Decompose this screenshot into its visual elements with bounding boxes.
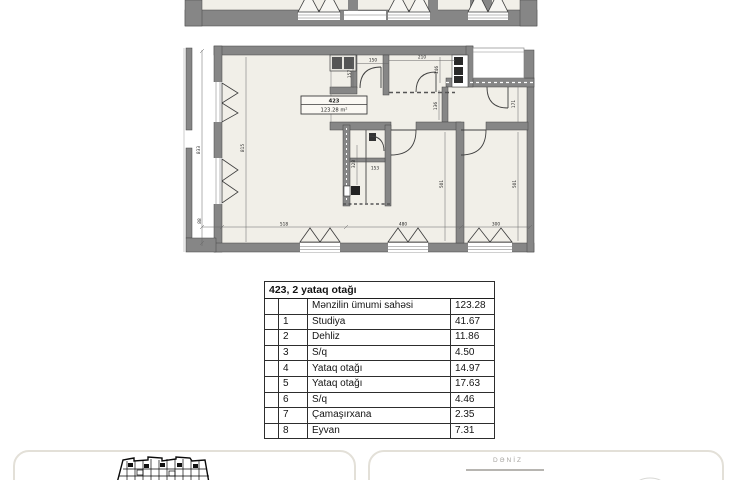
dim-bath-h: 153: [371, 166, 379, 172]
dim-bath-v: 328: [351, 160, 357, 168]
sea-direction-label: DƏNİZ: [465, 457, 551, 464]
building-key-plan-thumbnail: [114, 454, 214, 480]
area-table: 423, 2 yataq otağı Mənzilin ümumi sahəsi…: [264, 281, 495, 439]
dim-bottom-1: 518: [280, 222, 288, 228]
dim-top-v1: 157: [347, 70, 353, 78]
table-row: 8 Eyvan 7.31: [265, 423, 495, 439]
floor-plan-drawing: 833 815 150 210 157 146 136 171 328 153 …: [0, 0, 730, 262]
dim-right-room-v: 171: [511, 100, 517, 108]
table-row: 4 Yataq otağı 14.97: [265, 361, 495, 377]
table-row: 7 Çamaşırxana 2.35: [265, 408, 495, 424]
table-row: Mənzilin ümumi sahəsi 123.28: [265, 299, 495, 315]
unit-label-box: 423 123.28 m²: [301, 96, 367, 114]
main-floor-plan: 833 815 150 210 157 146 136 171 328 153 …: [184, 46, 534, 252]
dim-top-v2: 146: [434, 66, 440, 74]
table-row: 3 S/q 4.50: [265, 345, 495, 361]
dim-bedroom1-v: 501: [439, 180, 445, 188]
table-row: 5 Yataq otağı 17.63: [265, 376, 495, 392]
compass-icon: [622, 473, 678, 480]
dim-bottom-2: 480: [399, 222, 407, 228]
utility-shaft: [452, 55, 468, 87]
key-plan-card: [13, 450, 356, 480]
floor-plan-page: 833 815 150 210 157 146 136 171 328 153 …: [0, 0, 730, 480]
orientation-card: DƏNİZ: [368, 450, 724, 480]
dim-top-2: 210: [418, 55, 426, 61]
upper-floor-plan-strip: [185, 0, 537, 26]
dim-bedroom2-v: 501: [512, 180, 518, 188]
dim-bottom-left: 88: [197, 218, 203, 224]
kitchen-fixture: [330, 55, 356, 71]
dim-hall-v: 136: [433, 102, 439, 110]
table-row: 6 S/q 4.46: [265, 392, 495, 408]
dim-left-outer: 833: [196, 146, 202, 154]
dim-top-1: 150: [369, 58, 377, 64]
sea-direction-divider: [466, 469, 544, 471]
strip-windows: [298, 0, 508, 20]
unit-number: 423: [329, 99, 340, 105]
dim-left-inner: 815: [240, 144, 246, 152]
unit-area: 123.28 m²: [321, 108, 348, 114]
table-row: 2 Dehliz 11.86: [265, 330, 495, 346]
table-row: 1 Studiya 41.67: [265, 314, 495, 330]
table-title: 423, 2 yataq otağı: [265, 282, 495, 299]
dim-bottom-3: 300: [492, 222, 500, 228]
table-title-row: 423, 2 yataq otağı: [265, 282, 495, 299]
